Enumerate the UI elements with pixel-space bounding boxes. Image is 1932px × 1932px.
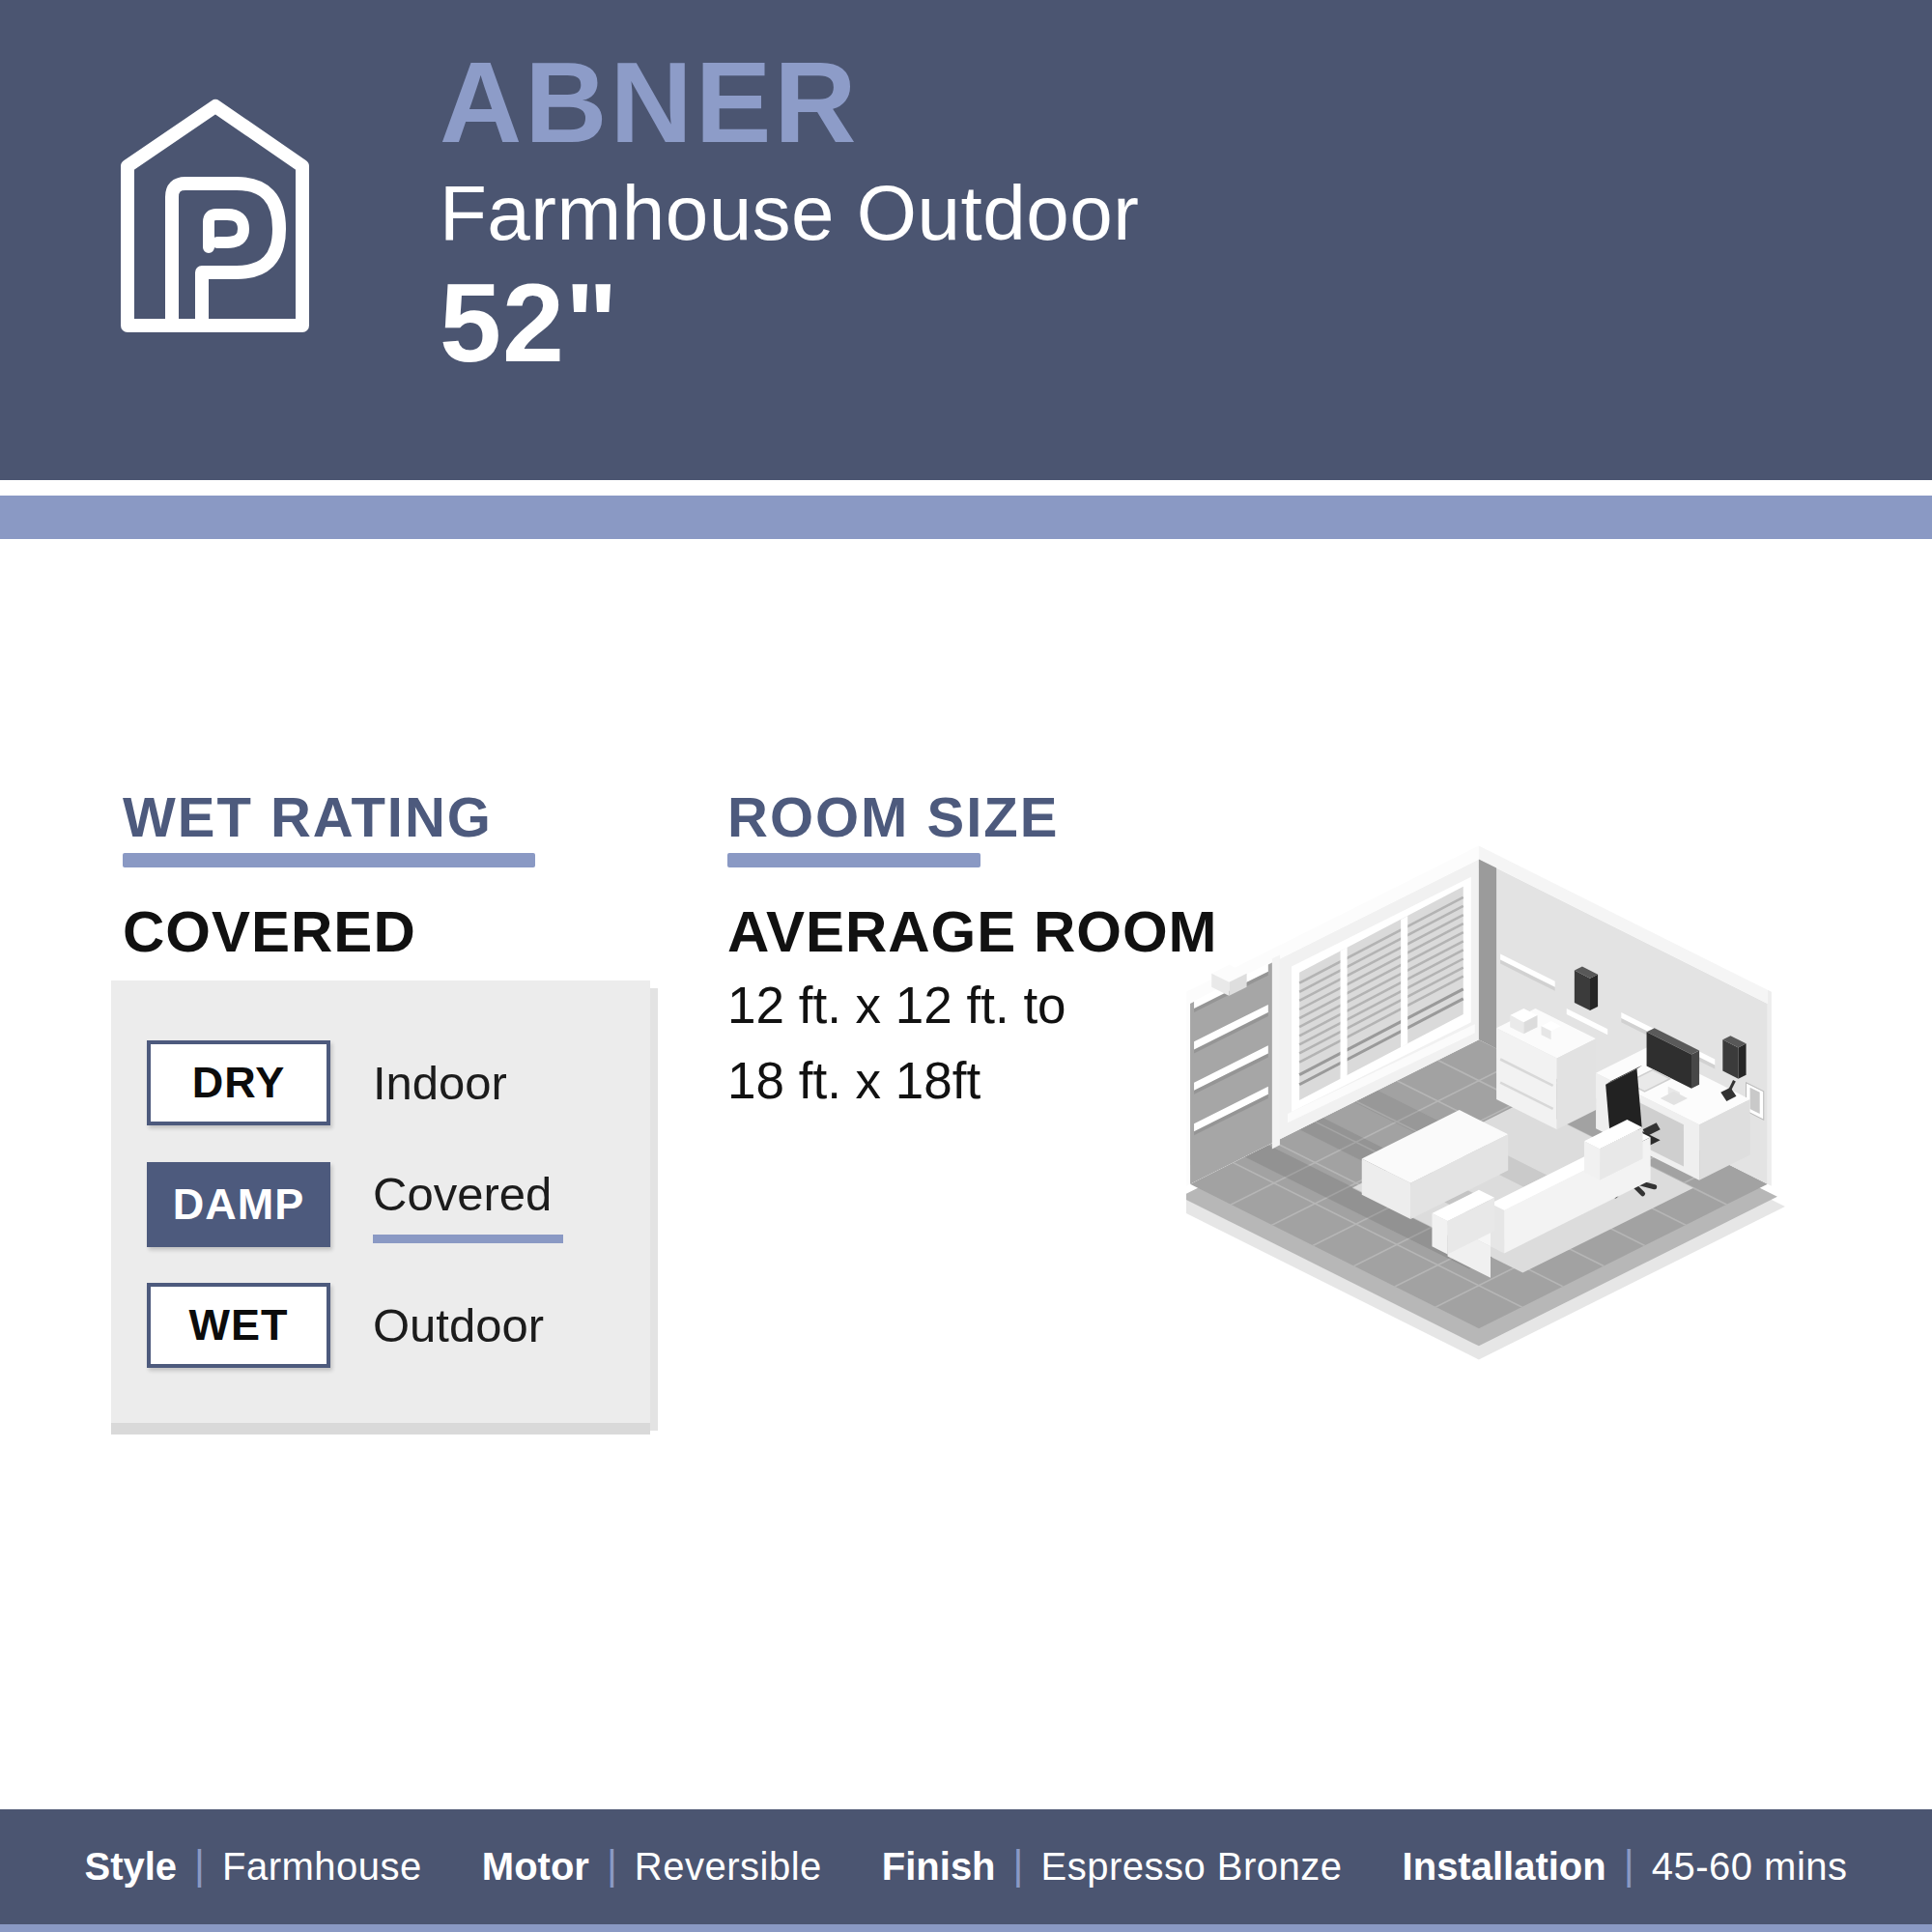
footer-accent-stripe <box>0 1924 1932 1932</box>
spec-separator: | <box>194 1842 205 1889</box>
wet-rating-value: COVERED <box>123 898 416 965</box>
header-title-block: ABNER Farmhouse Outdoor 52" <box>440 41 1139 382</box>
footer-spec-bar: Style | Farmhouse Motor | Reversible Fin… <box>0 1809 1932 1924</box>
spec-finish-value: Espresso Bronze <box>1040 1845 1342 1889</box>
room-size-range-line2: 18 ft. x 18ft <box>727 1051 980 1110</box>
isometric-room-illustration-icon <box>1186 837 1791 1383</box>
product-size: 52" <box>440 265 1139 382</box>
spec-motor-label: Motor <box>482 1845 589 1889</box>
room-size-subheading: AVERAGE ROOM <box>727 898 1218 965</box>
infographic-page: ABNER Farmhouse Outdoor 52" WET RATING C… <box>0 0 1932 1932</box>
spec-separator: | <box>1624 1842 1634 1889</box>
room-size-range-line1: 12 ft. x 12 ft. to <box>727 976 1066 1035</box>
product-title: ABNER <box>440 41 1139 166</box>
spec-separator: | <box>607 1842 617 1889</box>
spec-separator: | <box>1013 1842 1024 1889</box>
spec-motor-value: Reversible <box>635 1845 822 1889</box>
rating-row-wet: WET Outdoor <box>147 1283 544 1368</box>
product-subtitle: Farmhouse Outdoor <box>440 172 1139 255</box>
spec-motor: Motor | Reversible <box>482 1844 822 1890</box>
wet-rating-panel: DRY Indoor DAMP Covered WET Outdoor <box>111 980 650 1423</box>
spec-installation-value: 45-60 mins <box>1652 1845 1848 1889</box>
wet-badge: WET <box>147 1283 330 1368</box>
spec-finish-label: Finish <box>882 1845 996 1889</box>
spec-installation-label: Installation <box>1403 1845 1606 1889</box>
wet-rating-heading: WET RATING <box>123 784 493 849</box>
rating-row-damp: DAMP Covered <box>147 1162 563 1247</box>
spec-style-label: Style <box>84 1845 177 1889</box>
room-size-heading: ROOM SIZE <box>727 784 1059 849</box>
header: ABNER Farmhouse Outdoor 52" <box>0 0 1932 480</box>
spec-finish: Finish | Espresso Bronze <box>882 1844 1343 1890</box>
dry-badge: DRY <box>147 1040 330 1125</box>
house-p-logo-icon <box>92 79 338 369</box>
spec-style-value: Farmhouse <box>222 1845 422 1889</box>
spec-style: Style | Farmhouse <box>84 1844 421 1890</box>
damp-badge: DAMP <box>147 1162 330 1247</box>
damp-label: Covered <box>373 1167 563 1243</box>
wet-rating-underline <box>123 853 535 867</box>
room-size-underline <box>727 853 980 867</box>
rating-row-dry: DRY Indoor <box>147 1040 507 1125</box>
wet-label: Outdoor <box>373 1298 544 1352</box>
spec-installation: Installation | 45-60 mins <box>1403 1844 1848 1890</box>
dry-label: Indoor <box>373 1056 507 1110</box>
accent-stripe <box>0 496 1932 539</box>
